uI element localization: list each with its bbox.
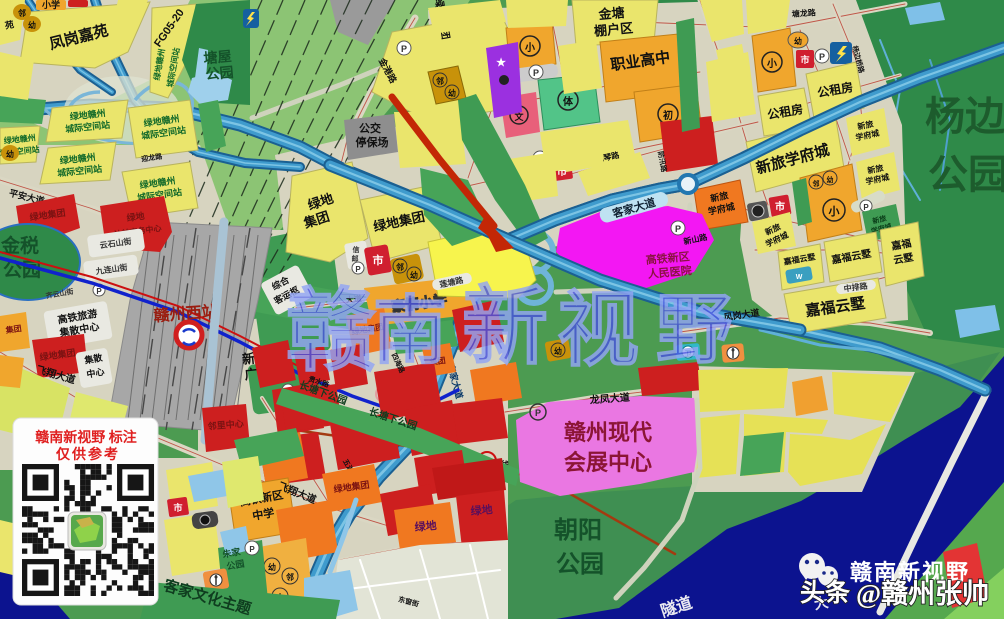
svg-text:信: 信 (353, 245, 360, 254)
svg-text:初: 初 (663, 109, 673, 122)
svg-text:南: 南 (373, 291, 447, 373)
svg-text:仅供参考: 仅供参考 (55, 446, 120, 463)
svg-text:新: 新 (462, 279, 548, 375)
svg-text:P: P (535, 408, 541, 418)
svg-text:幼: 幼 (448, 88, 456, 98)
svg-text:体: 体 (563, 95, 574, 108)
svg-text:P: P (249, 545, 255, 554)
svg-text:杨边: 杨边 (925, 95, 1004, 139)
svg-text:P: P (355, 265, 361, 274)
svg-text:金塘: 金塘 (597, 5, 625, 22)
svg-text:野: 野 (656, 289, 732, 373)
svg-text:邻: 邻 (285, 572, 294, 582)
svg-text:市: 市 (800, 54, 809, 65)
svg-text:会展中心: 会展中心 (564, 450, 652, 475)
svg-text:W: W (796, 274, 803, 281)
svg-text:市: 市 (775, 200, 785, 213)
svg-text:赣州现代: 赣州现代 (564, 420, 652, 445)
svg-text:幼: 幼 (410, 270, 418, 280)
svg-text:幼: 幼 (268, 562, 276, 572)
svg-text:@赣州张帅: @赣州张帅 (856, 578, 989, 609)
svg-text:公园: 公园 (928, 153, 1004, 197)
svg-text:邻: 邻 (435, 76, 444, 86)
svg-text:塘龙路: 塘龙路 (791, 7, 817, 19)
svg-text:视: 视 (557, 285, 639, 376)
svg-text:P: P (819, 52, 825, 62)
svg-text:小: 小 (766, 57, 777, 70)
svg-text:P: P (675, 224, 681, 234)
svg-text:P: P (401, 44, 407, 54)
svg-text:P: P (533, 68, 539, 78)
svg-text:公园: 公园 (556, 551, 604, 578)
svg-text:邻: 邻 (395, 262, 404, 272)
svg-text:头条: 头条 (800, 579, 851, 607)
svg-text:公园: 公园 (205, 64, 234, 82)
svg-text:幼: 幼 (28, 20, 36, 30)
svg-text:市: 市 (173, 502, 182, 513)
svg-text:幼: 幼 (6, 149, 14, 159)
svg-text:幼: 幼 (827, 175, 834, 184)
svg-text:朝阳: 朝阳 (554, 517, 602, 544)
svg-text:★: ★ (496, 57, 506, 69)
svg-text:邻: 邻 (812, 179, 820, 188)
svg-text:停保场: 停保场 (356, 135, 389, 149)
svg-text:小: 小 (828, 204, 840, 218)
svg-text:邻: 邻 (17, 8, 26, 18)
svg-text:幼: 幼 (794, 36, 802, 46)
svg-text:苑: 苑 (4, 18, 15, 30)
svg-text:小: 小 (524, 41, 535, 54)
svg-text:市: 市 (373, 253, 384, 267)
svg-text:赣南新视野 标注: 赣南新视野 标注 (35, 429, 137, 446)
svg-text:公交: 公交 (359, 121, 381, 135)
svg-text:小学: 小学 (41, 0, 60, 10)
svg-text:赣: 赣 (286, 283, 377, 382)
svg-text:P: P (96, 287, 102, 296)
